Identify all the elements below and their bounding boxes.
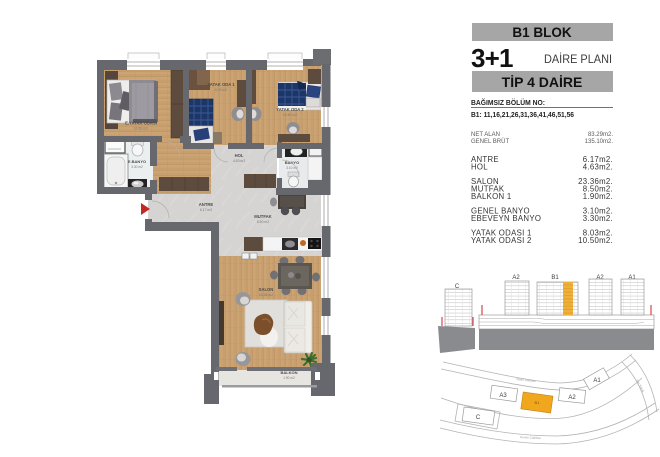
svg-text:6.17 m2: 6.17 m2 — [200, 208, 212, 212]
svg-text:SALON: SALON — [259, 287, 274, 292]
svg-text:3.30m2.: 3.30m2. — [583, 214, 613, 223]
svg-text:YATAK ODA 1: YATAK ODA 1 — [207, 82, 235, 87]
svg-text:NET ALAN: NET ALAN — [471, 132, 500, 138]
svg-text:YATAK ODA 2: YATAK ODA 2 — [276, 107, 304, 112]
svg-text:E.BANYO: E.BANYO — [128, 159, 146, 164]
svg-text:10.50 m2: 10.50 m2 — [134, 127, 148, 131]
svg-text:HOL: HOL — [235, 153, 244, 158]
svg-text:B1 BLOK: B1 BLOK — [512, 25, 572, 40]
svg-text:EBEVEYN BANYO: EBEVEYN BANYO — [471, 214, 541, 223]
svg-text:MUTFAK: MUTFAK — [254, 214, 271, 219]
svg-text:TİP 4 DAİRE: TİP 4 DAİRE — [502, 74, 583, 90]
svg-text:BALKON 1: BALKON 1 — [471, 192, 512, 201]
svg-text:8.03 m2: 8.03 m2 — [215, 88, 227, 92]
svg-text:B1: B1 — [535, 400, 541, 405]
svg-text:BAĞIMSIZ BÖLÜM NO:: BAĞIMSIZ BÖLÜM NO: — [471, 98, 545, 107]
svg-text:YATAK ODASI 2: YATAK ODASI 2 — [471, 236, 532, 245]
svg-text:GENEL BRÜT: GENEL BRÜT — [471, 138, 509, 145]
svg-text:1.90 m2: 1.90 m2 — [283, 376, 295, 380]
svg-text:83.29m2.: 83.29m2. — [588, 132, 613, 138]
svg-text:3.30 m2: 3.30 m2 — [131, 165, 143, 169]
svg-text:3+1: 3+1 — [471, 43, 513, 73]
svg-text:23.36 m2: 23.36 m2 — [259, 293, 273, 297]
svg-text:ANTRE: ANTRE — [199, 202, 214, 207]
svg-text:HOL: HOL — [471, 163, 488, 172]
svg-text:A2: A2 — [568, 395, 576, 401]
svg-text:B1: 11,16,21,26,31,36,41,46,51: B1: 11,16,21,26,31,36,41,46,51,56 — [471, 112, 574, 119]
svg-text:10.50m2.: 10.50m2. — [578, 236, 613, 245]
svg-text:E.YATAK ODASI: E.YATAK ODASI — [125, 121, 157, 126]
svg-text:8.50 m2: 8.50 m2 — [257, 220, 269, 224]
svg-text:B1: B1 — [551, 275, 559, 281]
svg-text:C: C — [476, 415, 481, 421]
svg-text:A1: A1 — [593, 378, 601, 384]
svg-text:10.50 m2: 10.50 m2 — [283, 113, 297, 117]
svg-text:135.10m2.: 135.10m2. — [585, 139, 614, 145]
svg-text:A2: A2 — [512, 275, 520, 281]
svg-text:4.63m2.: 4.63m2. — [583, 163, 613, 172]
svg-text:DAİRE PLANI: DAİRE PLANI — [544, 52, 612, 66]
svg-text:A3: A3 — [499, 393, 507, 399]
svg-text:1.90m2.: 1.90m2. — [583, 192, 613, 201]
svg-text:4.63 m2: 4.63 m2 — [233, 159, 245, 163]
